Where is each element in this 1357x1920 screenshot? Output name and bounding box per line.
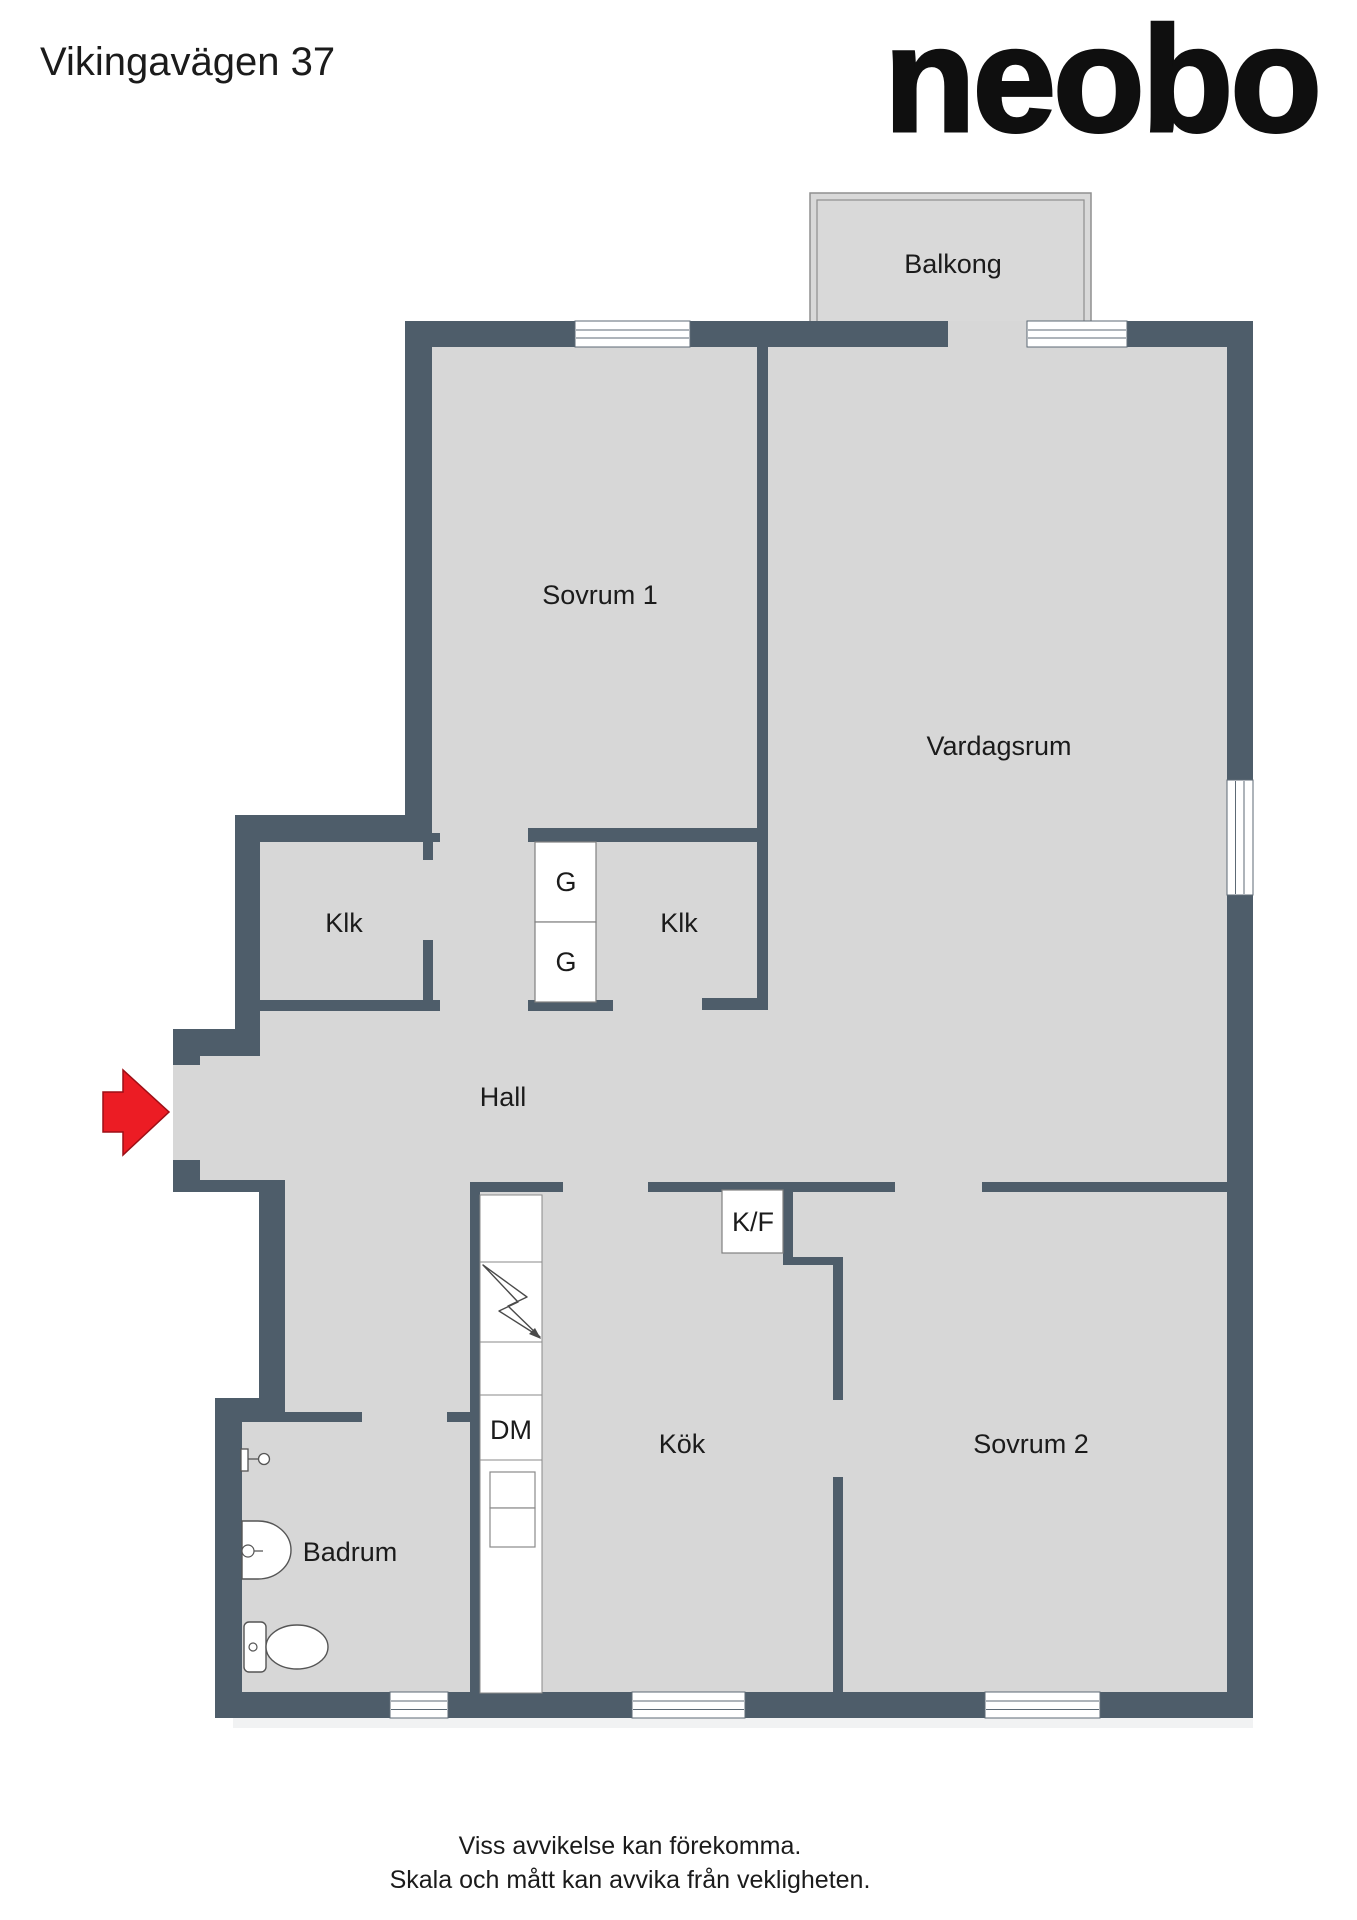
footer-disclaimer: Viss avvikelse kan förekomma. Skala och …	[390, 1832, 871, 1894]
wall-bathroom-top-stub	[447, 1412, 470, 1422]
window-kitchen	[632, 1692, 745, 1718]
wall-kitchen-bedroom2-b	[833, 1477, 843, 1693]
bottom-shadow	[233, 1718, 1253, 1728]
wall-fridge-right	[783, 1190, 793, 1265]
wall-hall-bottom-a	[470, 1182, 563, 1192]
label-wardrobe-1: G	[555, 867, 576, 897]
wall-closet-left-right-b	[423, 940, 433, 1001]
wall-closet-block-top	[235, 815, 407, 842]
floorplan-canvas: Vikingavägen 37 neobo	[0, 0, 1357, 1920]
wall-bedroom1-door-jamb	[427, 833, 440, 842]
wall-bathroom-top	[242, 1412, 362, 1422]
label-balcony: Balkong	[904, 249, 1002, 279]
wall-bedroom1-left	[405, 321, 432, 842]
wall-entry-upper-jamb	[173, 1029, 200, 1065]
disclaimer-line-1: Viss avvikelse kan förekomma.	[459, 1832, 802, 1860]
wall-entry-step	[200, 1180, 259, 1192]
sink-basin-1	[490, 1472, 535, 1508]
wall-right	[1227, 321, 1253, 1718]
window-bathroom	[390, 1692, 448, 1718]
wall-corridor-left	[259, 1180, 285, 1398]
label-bathroom: Badrum	[303, 1537, 398, 1567]
label-dishwasher: DM	[490, 1415, 532, 1445]
window-living-top	[1027, 321, 1127, 347]
wall-closet-middle-right	[757, 842, 768, 998]
disclaimer-line-2: Skala och mått kan avvika från veklighet…	[390, 1866, 871, 1894]
entrance-arrow	[103, 1070, 169, 1155]
label-hall: Hall	[480, 1082, 527, 1112]
entrance-arrow-shape	[103, 1070, 169, 1155]
wall-closet-left-right-a	[423, 842, 433, 860]
floorplan-page: Vikingavägen 37 neobo	[0, 0, 1357, 1920]
floor-polygon	[173, 321, 1253, 1718]
wall-hall-bottom-c	[982, 1182, 1227, 1192]
label-kitchen: Kök	[659, 1429, 706, 1459]
wall-closet-left-bottom	[260, 1000, 440, 1011]
page-title: Vikingavägen 37	[40, 40, 335, 84]
wall-bedroom1-living	[757, 347, 768, 842]
wall-kitchen-bedroom2-a	[833, 1265, 843, 1400]
wall-closet-middle-bottom-cap	[702, 998, 768, 1010]
brand-logo: neobo	[884, 0, 1319, 163]
wall-closet-block-left	[235, 815, 260, 1029]
wall-top-middle	[690, 321, 948, 347]
wall-entry-lower-jamb	[173, 1160, 200, 1192]
wall-fridge-bottom	[783, 1257, 843, 1265]
window-bedroom1	[575, 321, 690, 347]
label-closet-middle: Klk	[660, 908, 698, 938]
label-bedroom2: Sovrum 2	[973, 1429, 1089, 1459]
label-fridge-freezer: K/F	[732, 1207, 774, 1237]
floor-area	[173, 321, 1253, 1718]
toilet-icon	[244, 1622, 328, 1672]
sink-basin-2	[490, 1508, 535, 1547]
wall-bathroom-left	[215, 1398, 242, 1718]
label-closet-left: Klk	[325, 908, 363, 938]
label-living-room: Vardagsrum	[926, 731, 1071, 761]
label-wardrobe-2: G	[555, 947, 576, 977]
wall-kitchen-column-left	[470, 1192, 480, 1693]
window-bedroom2	[985, 1692, 1100, 1718]
window-living-right	[1227, 780, 1253, 895]
label-bedroom1: Sovrum 1	[542, 580, 658, 610]
wall-bedroom1-bottom	[528, 828, 768, 842]
